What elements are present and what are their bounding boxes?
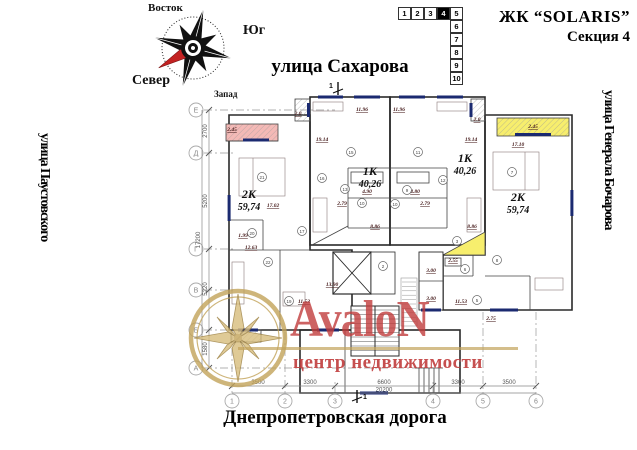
axis-row: Д [194, 151, 199, 158]
dim-label: 2.79 [419, 201, 430, 207]
axis-col: 6 [534, 399, 538, 406]
dim-label: 8.86 [467, 224, 477, 230]
street-left: улица Паустовского [36, 133, 52, 343]
floor-button-1[interactable]: 1 [398, 7, 411, 20]
dim-label: 2.45 [226, 127, 237, 133]
project-name: ЖК “SOLARIS” [460, 7, 630, 27]
dim-label: 11.96 [393, 107, 405, 113]
dim-label: 8.86 [370, 224, 380, 230]
unit-label-area: 59,74 [507, 205, 530, 216]
floor-button-3[interactable]: 3 [424, 7, 437, 20]
header-title: ЖК “SOLARIS” Секция 4 [460, 7, 630, 46]
dim-label: 19.14 [465, 137, 478, 143]
section-marker-top: 1 [329, 82, 343, 95]
unit-label-type: 1К [363, 164, 378, 178]
axis-row: Е [194, 108, 199, 115]
room-number: 10 [392, 202, 398, 207]
compass-label-south: Юг [243, 23, 265, 39]
dim-label: 11.53 [455, 299, 467, 305]
section-name: Секция 4 [460, 29, 630, 46]
street-right: улица Генерала Бочарова [600, 90, 616, 370]
dim-label: 17.10 [512, 142, 525, 148]
dim-label: 2.0 [294, 111, 302, 117]
dim-bottom: 3300 [303, 380, 317, 386]
room-number: 11 [416, 150, 421, 155]
room-number: 13 [342, 187, 348, 192]
street-top: улица Сахарова [250, 56, 430, 78]
dim-label: 12.63 [245, 245, 258, 251]
dim-label: 19.14 [316, 137, 329, 143]
logo-compass-icon [186, 286, 290, 390]
dim-bottom: 6600 [377, 380, 391, 386]
axis-col: 5 [481, 399, 485, 406]
axis-col: 3 [333, 399, 337, 406]
room-number: 15 [348, 150, 354, 155]
unit-blue-area[interactable] [310, 97, 390, 245]
dim-label: 1.99 [238, 233, 248, 239]
unit-label-area: 59,74 [238, 202, 261, 213]
room-number: 10 [359, 201, 365, 206]
dim-label: 17.02 [267, 203, 280, 209]
room-number: 16 [319, 176, 325, 181]
dim-label: 11.96 [356, 107, 368, 113]
room-number: 21 [259, 175, 265, 180]
dim-label: 2.55 [447, 258, 458, 264]
dim-bottom: 3300 [451, 380, 465, 386]
axis-col: 2 [283, 399, 287, 406]
floor-button-8[interactable]: 8 [450, 46, 463, 59]
section-marker-label: 1 [363, 394, 367, 401]
dim-left: 5200 [203, 194, 209, 208]
floor-button-4-active[interactable]: 4 [437, 7, 450, 20]
compass-label-east: Восток [148, 2, 183, 14]
floor-button-9[interactable]: 9 [450, 59, 463, 72]
section-marker-label: 1 [329, 83, 333, 90]
street-bottom: Днепропетровская дорога [205, 407, 465, 429]
dim-label: 2.75 [485, 316, 496, 322]
dim-left: 2700 [203, 124, 209, 138]
dim-label: 4.90 [361, 189, 372, 195]
room-number: 22 [265, 260, 271, 265]
logo-subtitle: центр недвижимости [293, 352, 483, 374]
floorplan-page: Восток Юг Север Запад ЖК “SOLARIS” Секци… [0, 0, 637, 450]
dim-bottom: 3500 [502, 380, 516, 386]
floor-button-5[interactable]: 5 [450, 7, 463, 20]
dim-label: 13.90 [326, 282, 339, 288]
unit-label-area: 40,26 [453, 166, 477, 177]
unit-label-type: 2К [510, 190, 526, 204]
room-number: 20 [249, 231, 255, 236]
dim-label: 2.0 [473, 117, 481, 123]
compass-label-north: Север [132, 73, 170, 89]
unit-yellow-hall [443, 232, 485, 255]
dim-label: 3.00 [425, 268, 436, 274]
dim-left-total: 17200 [196, 231, 202, 248]
axis-col: 4 [431, 399, 435, 406]
room-number: 17 [299, 229, 305, 234]
unit-label-type: 1К [458, 151, 473, 165]
floor-button-6[interactable]: 6 [450, 20, 463, 33]
floor-button-2[interactable]: 2 [411, 7, 424, 20]
floor-button-7[interactable]: 7 [450, 33, 463, 46]
room-number: 12 [440, 178, 446, 183]
dim-label: 2.45 [527, 124, 538, 130]
axis-col: 1 [230, 399, 234, 406]
logo-name: AvaloN [290, 294, 429, 346]
unit-label-type: 2К [241, 187, 257, 201]
dim-label: 2.79 [336, 201, 347, 207]
dim-bottom-total: 20200 [376, 388, 393, 394]
